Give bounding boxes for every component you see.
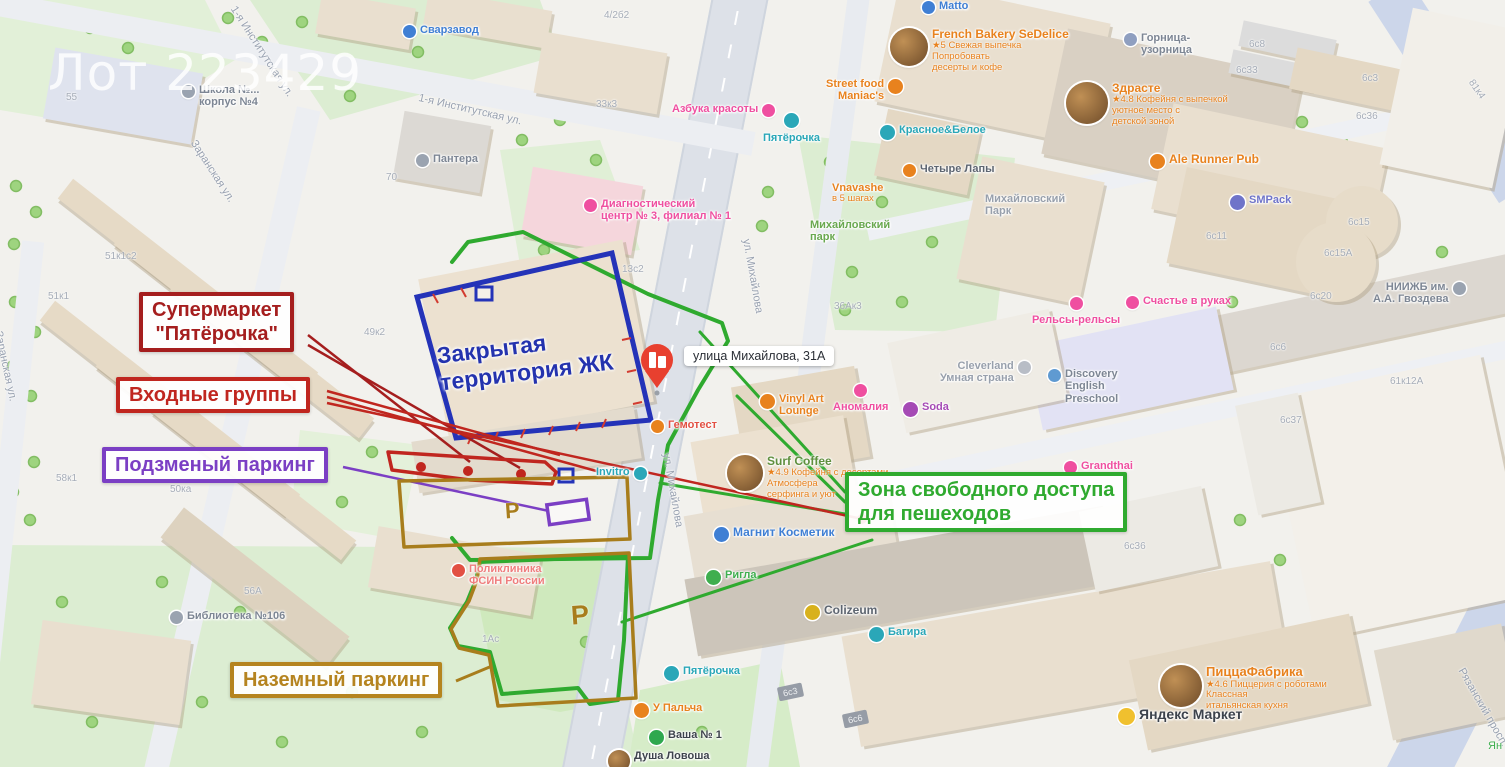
callout-supermarket: Супермаркет "Пятёрочка"	[139, 292, 294, 352]
watermark: Лот 223429	[48, 44, 362, 102]
callout-entrance-groups: Входные группы	[116, 377, 310, 413]
callout-surface-parking: Наземный паркинг	[230, 662, 442, 698]
callout-underground-parking: Подзменый паркинг	[102, 447, 328, 483]
callouts-layer: Супермаркет "Пятёрочка"Входные группыПод…	[0, 0, 1505, 767]
callout-free-access-zone: Зона свободного доступа для пешеходов	[845, 472, 1127, 532]
map-canvas[interactable]: 1-я Институтская ул.1-я Институтская ул.…	[0, 0, 1505, 767]
